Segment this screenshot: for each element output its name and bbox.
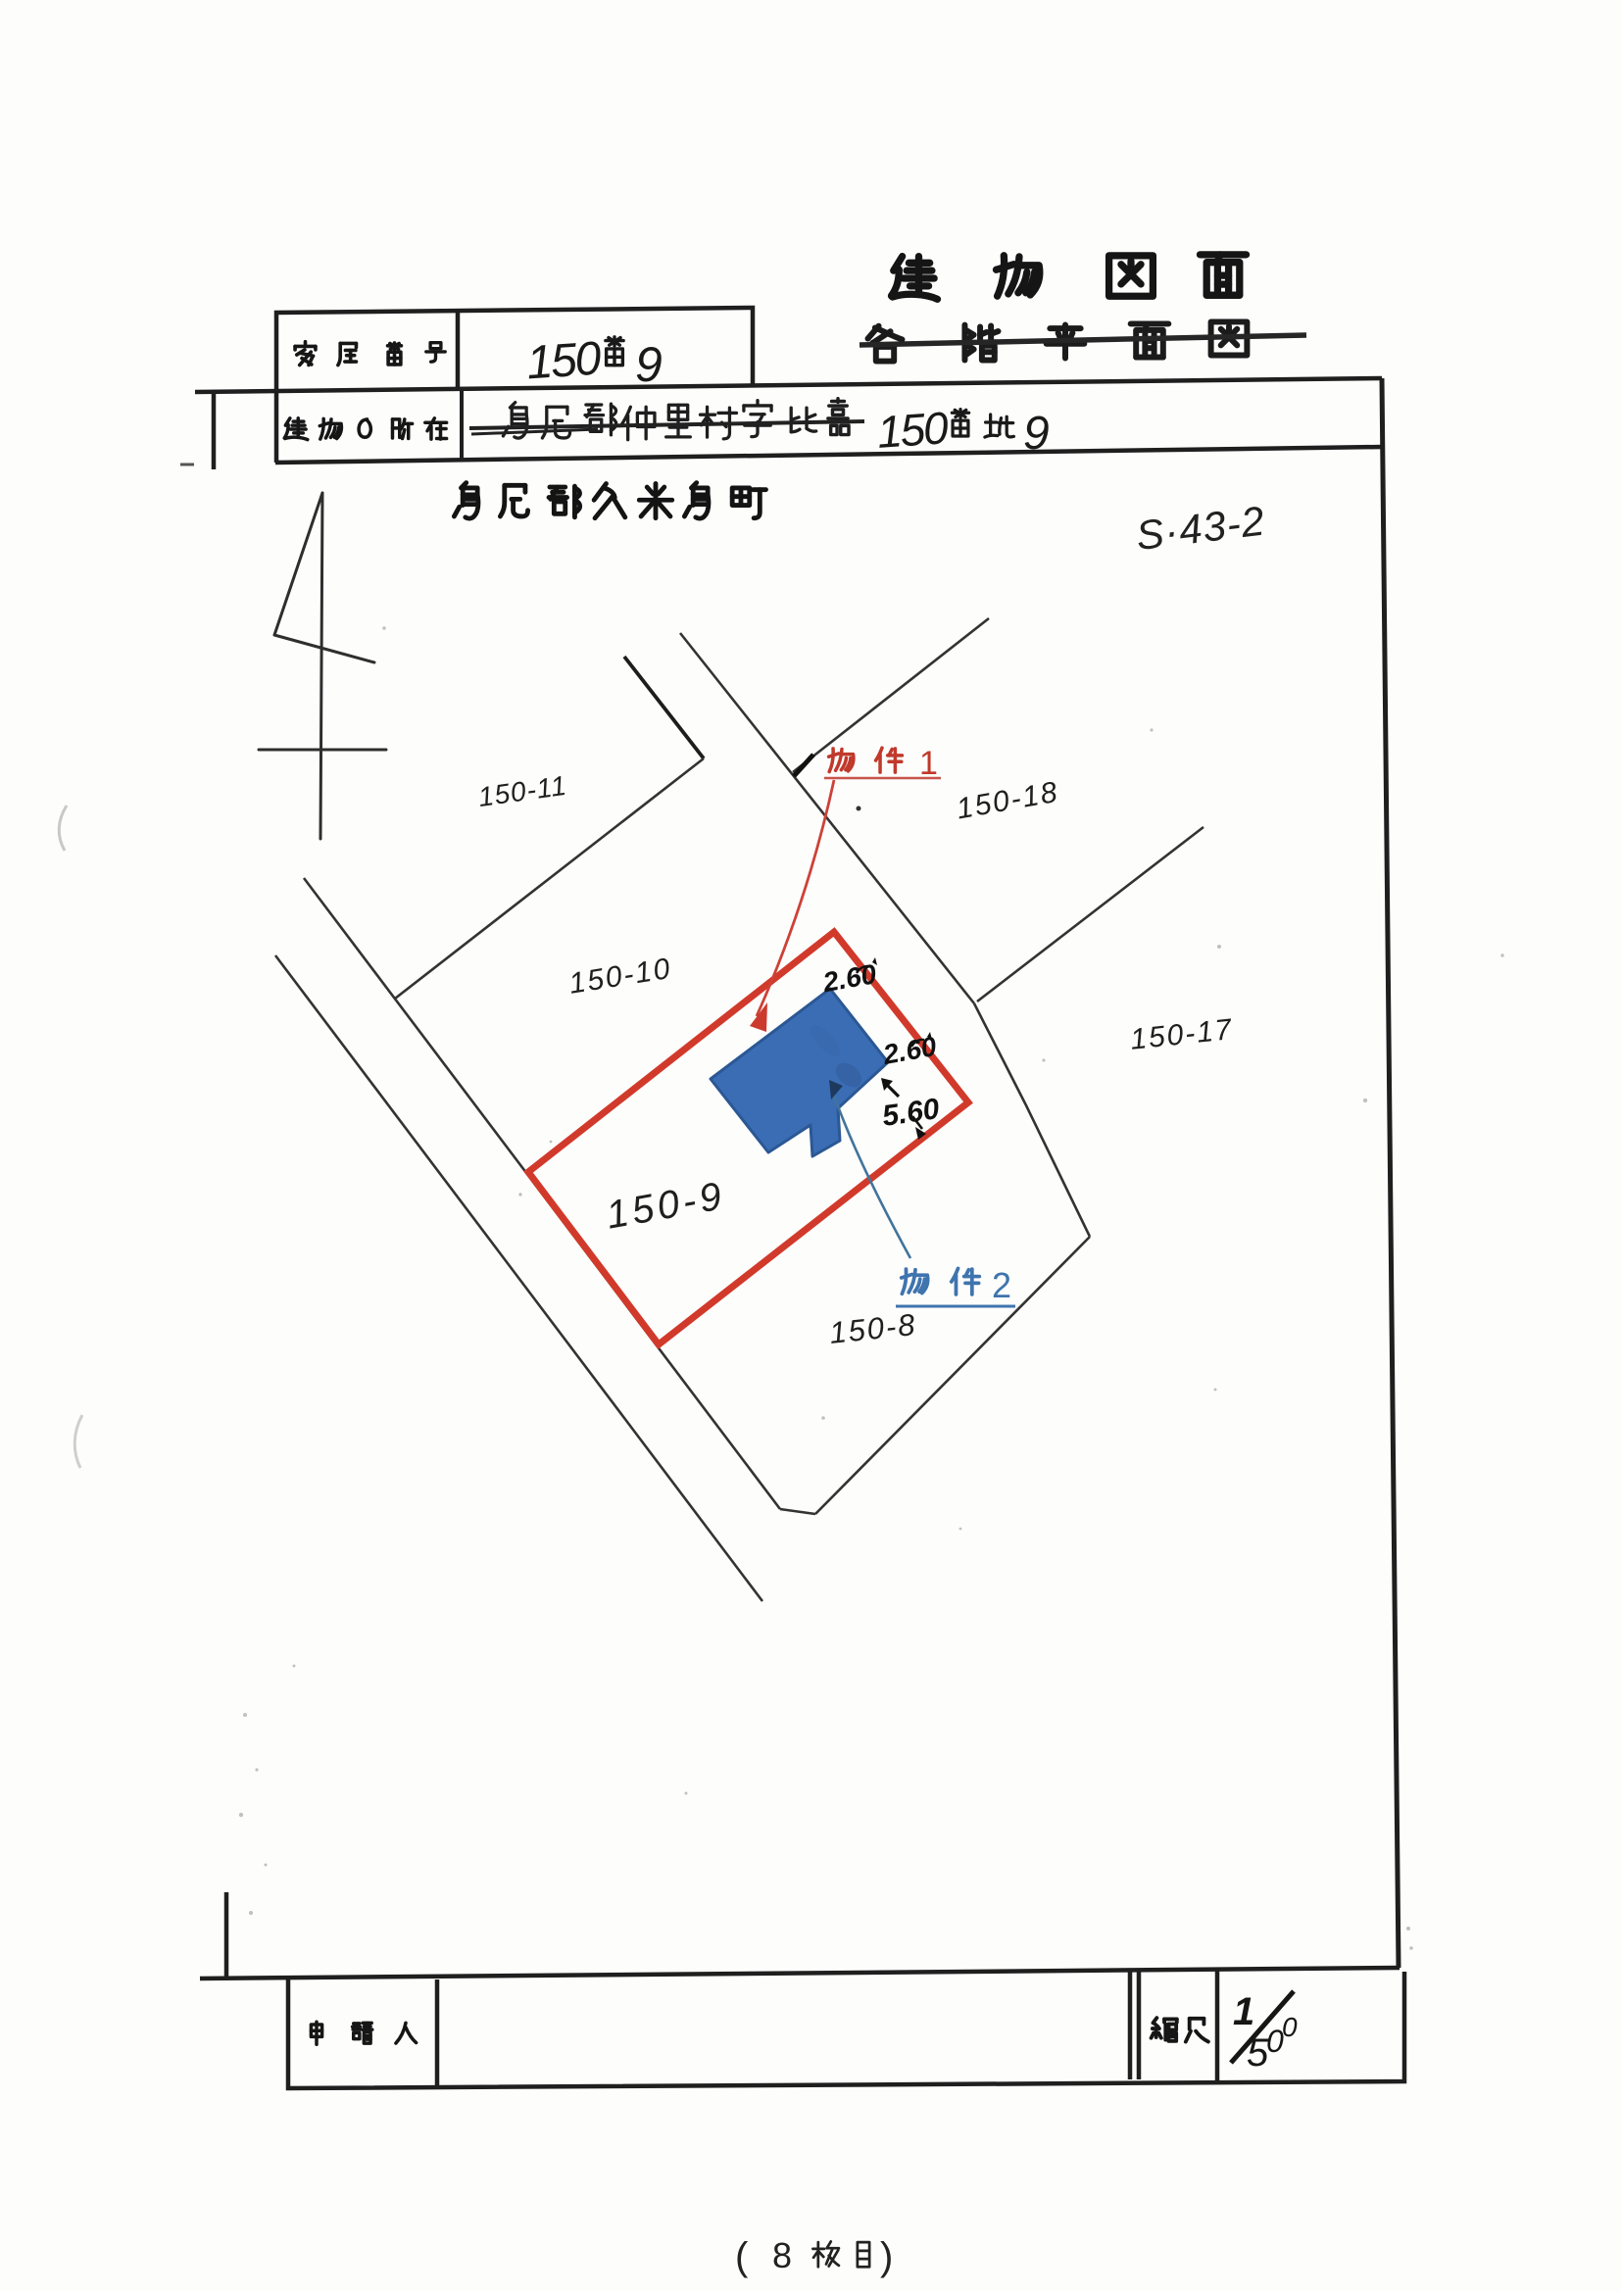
svg-text:2: 2 bbox=[992, 1265, 1011, 1305]
svg-text:150: 150 bbox=[525, 332, 604, 389]
svg-text:1: 1 bbox=[1233, 1990, 1254, 2033]
svg-text:8: 8 bbox=[772, 2235, 792, 2275]
svg-text:(: ( bbox=[735, 2235, 749, 2278]
svg-text:9: 9 bbox=[1023, 408, 1050, 460]
svg-text:): ) bbox=[880, 2235, 893, 2278]
svg-text:0: 0 bbox=[1282, 2012, 1298, 2042]
svg-text:1: 1 bbox=[919, 745, 938, 782]
svg-text:150: 150 bbox=[875, 402, 951, 458]
svg-text:9: 9 bbox=[635, 337, 663, 392]
